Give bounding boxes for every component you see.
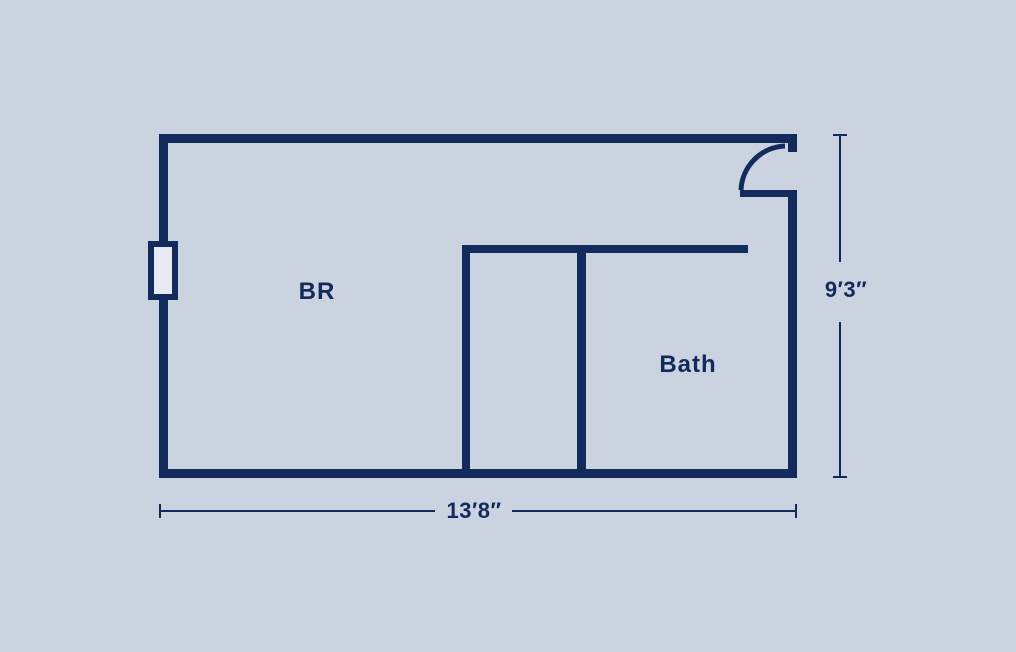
bathroom-label: Bath (659, 351, 716, 379)
wall-bottom (159, 469, 797, 478)
width-dimension-label: 13′8″ (446, 498, 501, 524)
wall-left (159, 134, 168, 478)
door-leaf (740, 190, 788, 197)
height-dimension-label: 9′3″ (825, 277, 867, 303)
floor-plan-canvas: BR Bath 13′8″ 9′3″ (0, 0, 1016, 652)
width-dimension-line-left (160, 510, 435, 512)
wall-top (159, 134, 797, 143)
door-swing-icon (0, 0, 1016, 652)
wall-interior-horizontal (462, 245, 748, 253)
height-dimension-tick-bottom (833, 476, 847, 478)
wall-closet-left (462, 245, 470, 478)
width-dimension-line-right (512, 510, 797, 512)
width-dimension-tick-right (795, 504, 797, 518)
wall-right (788, 190, 797, 478)
window-icon (148, 241, 178, 300)
height-dimension-line-bottom (839, 322, 841, 477)
width-dimension-tick-left (159, 504, 161, 518)
height-dimension-tick-top (833, 134, 847, 136)
height-dimension-line-top (839, 135, 841, 262)
wall-closet-right (577, 245, 586, 478)
bedroom-label: BR (299, 278, 336, 306)
wall-right-upper-jamb (788, 134, 797, 152)
